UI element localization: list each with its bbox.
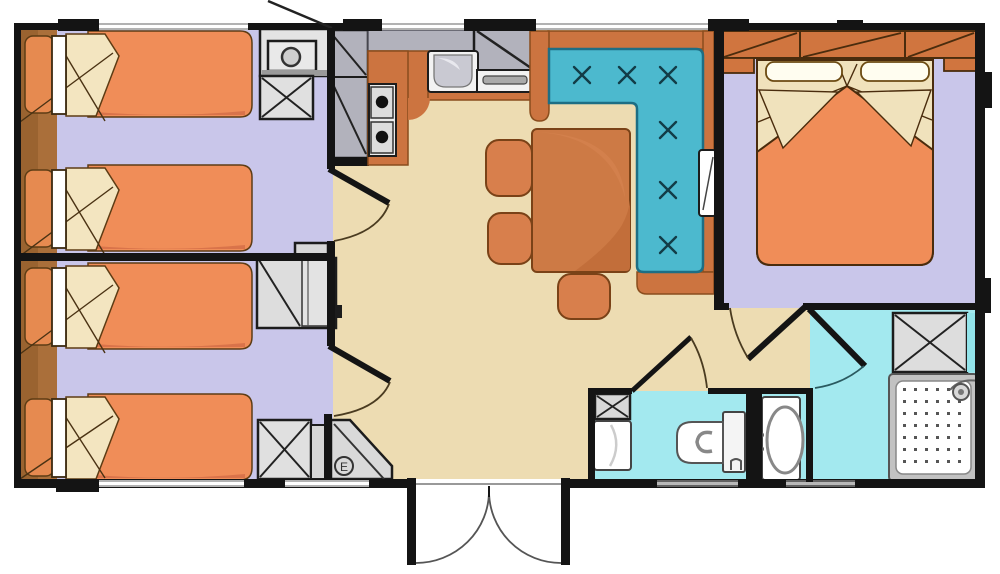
svg-text:E: E bbox=[340, 460, 348, 474]
